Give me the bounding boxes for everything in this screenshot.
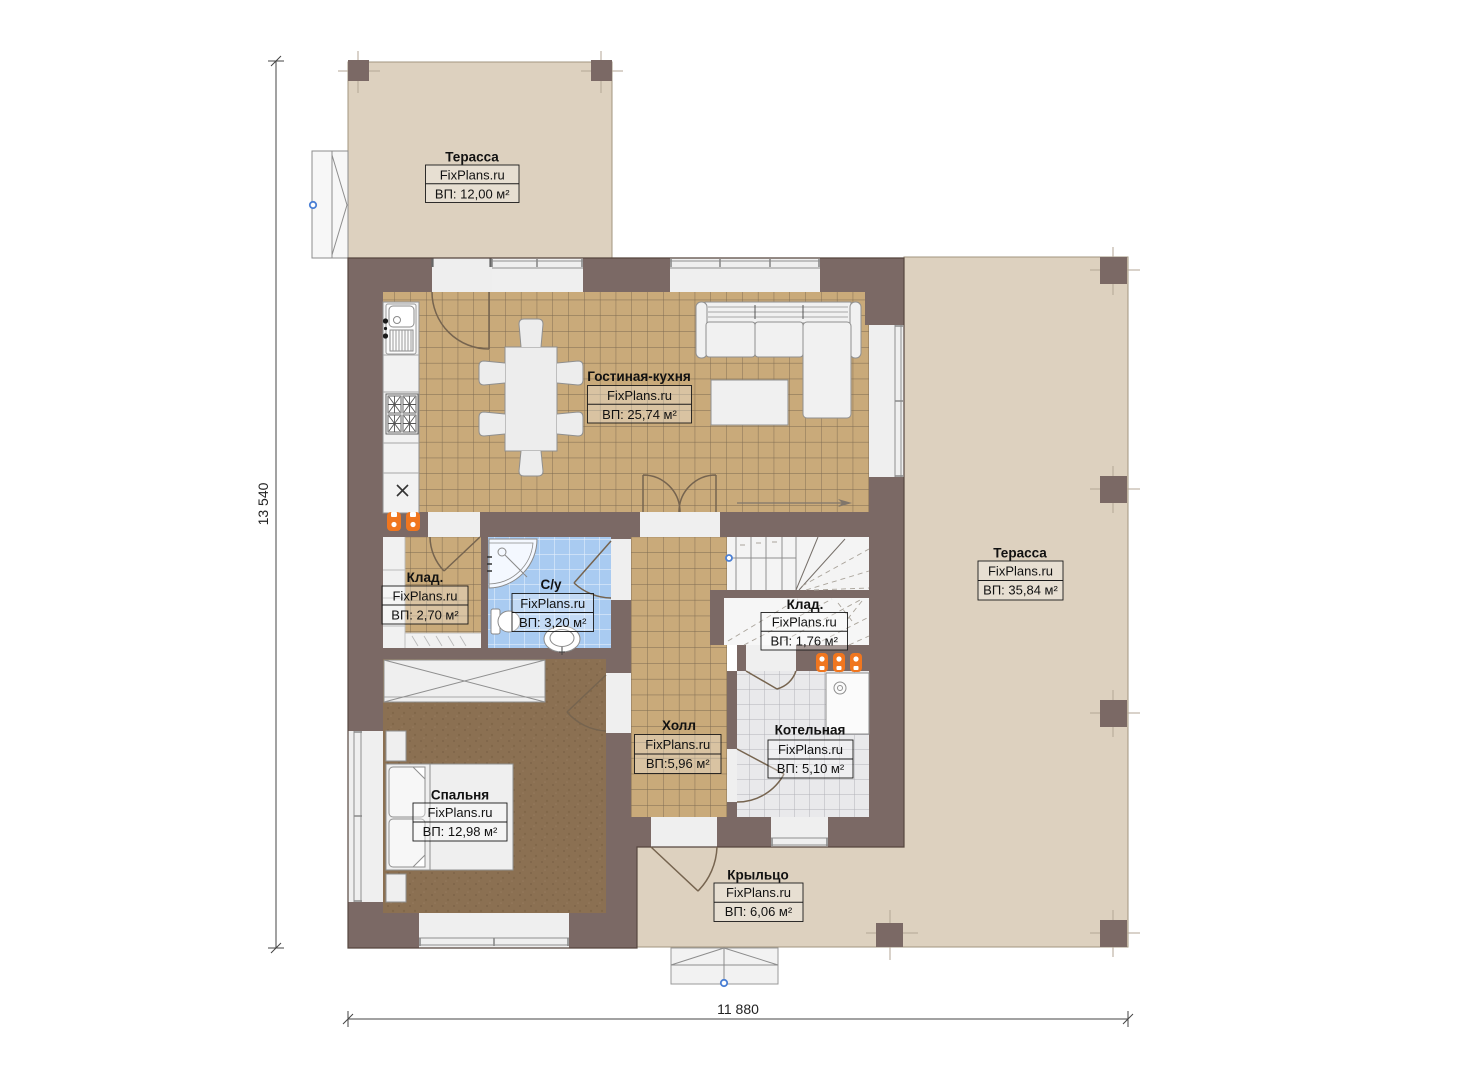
svg-text:ВП: 3,20 м²: ВП: 3,20 м² — [519, 615, 587, 630]
svg-text:13 540: 13 540 — [255, 482, 271, 525]
svg-text:FixPlans.ru: FixPlans.ru — [440, 167, 505, 182]
svg-text:FixPlans.ru: FixPlans.ru — [427, 805, 492, 820]
svg-text:ВП: 35,84 м²: ВП: 35,84 м² — [983, 582, 1058, 597]
svg-text:ВП: 12,98 м²: ВП: 12,98 м² — [423, 824, 498, 839]
svg-text:FixPlans.ru: FixPlans.ru — [772, 615, 837, 630]
svg-text:ВП: 2,70 м²: ВП: 2,70 м² — [391, 607, 459, 622]
svg-text:ВП: 6,06 м²: ВП: 6,06 м² — [725, 904, 793, 919]
svg-text:С/у: С/у — [540, 577, 562, 592]
svg-text:ВП: 1,76 м²: ВП: 1,76 м² — [771, 634, 839, 649]
svg-text:Клад.: Клад. — [407, 570, 444, 585]
svg-text:ВП: 25,74 м²: ВП: 25,74 м² — [602, 407, 677, 422]
svg-text:Терасса: Терасса — [993, 546, 1047, 561]
svg-text:FixPlans.ru: FixPlans.ru — [988, 563, 1053, 578]
svg-text:ВП: 12,00 м²: ВП: 12,00 м² — [435, 186, 510, 201]
svg-text:ВП: 5,10 м²: ВП: 5,10 м² — [777, 761, 845, 776]
svg-text:FixPlans.ru: FixPlans.ru — [607, 388, 672, 403]
svg-text:Терасса: Терасса — [445, 150, 499, 165]
svg-text:11 880: 11 880 — [717, 1001, 759, 1017]
svg-text:Котельная: Котельная — [775, 723, 846, 738]
svg-text:Гостиная-кухня: Гостиная-кухня — [587, 369, 690, 384]
svg-text:Клад.: Клад. — [787, 597, 824, 612]
svg-text:Спальня: Спальня — [431, 788, 489, 803]
svg-text:Крыльцо: Крыльцо — [727, 868, 788, 883]
svg-text:FixPlans.ru: FixPlans.ru — [726, 885, 791, 900]
svg-text:FixPlans.ru: FixPlans.ru — [645, 737, 710, 752]
svg-text:ВП:5,96 м²: ВП:5,96 м² — [646, 756, 710, 771]
svg-text:Холл: Холл — [662, 718, 696, 733]
svg-text:FixPlans.ru: FixPlans.ru — [520, 596, 585, 611]
svg-text:FixPlans.ru: FixPlans.ru — [392, 588, 457, 603]
svg-text:FixPlans.ru: FixPlans.ru — [778, 742, 843, 757]
